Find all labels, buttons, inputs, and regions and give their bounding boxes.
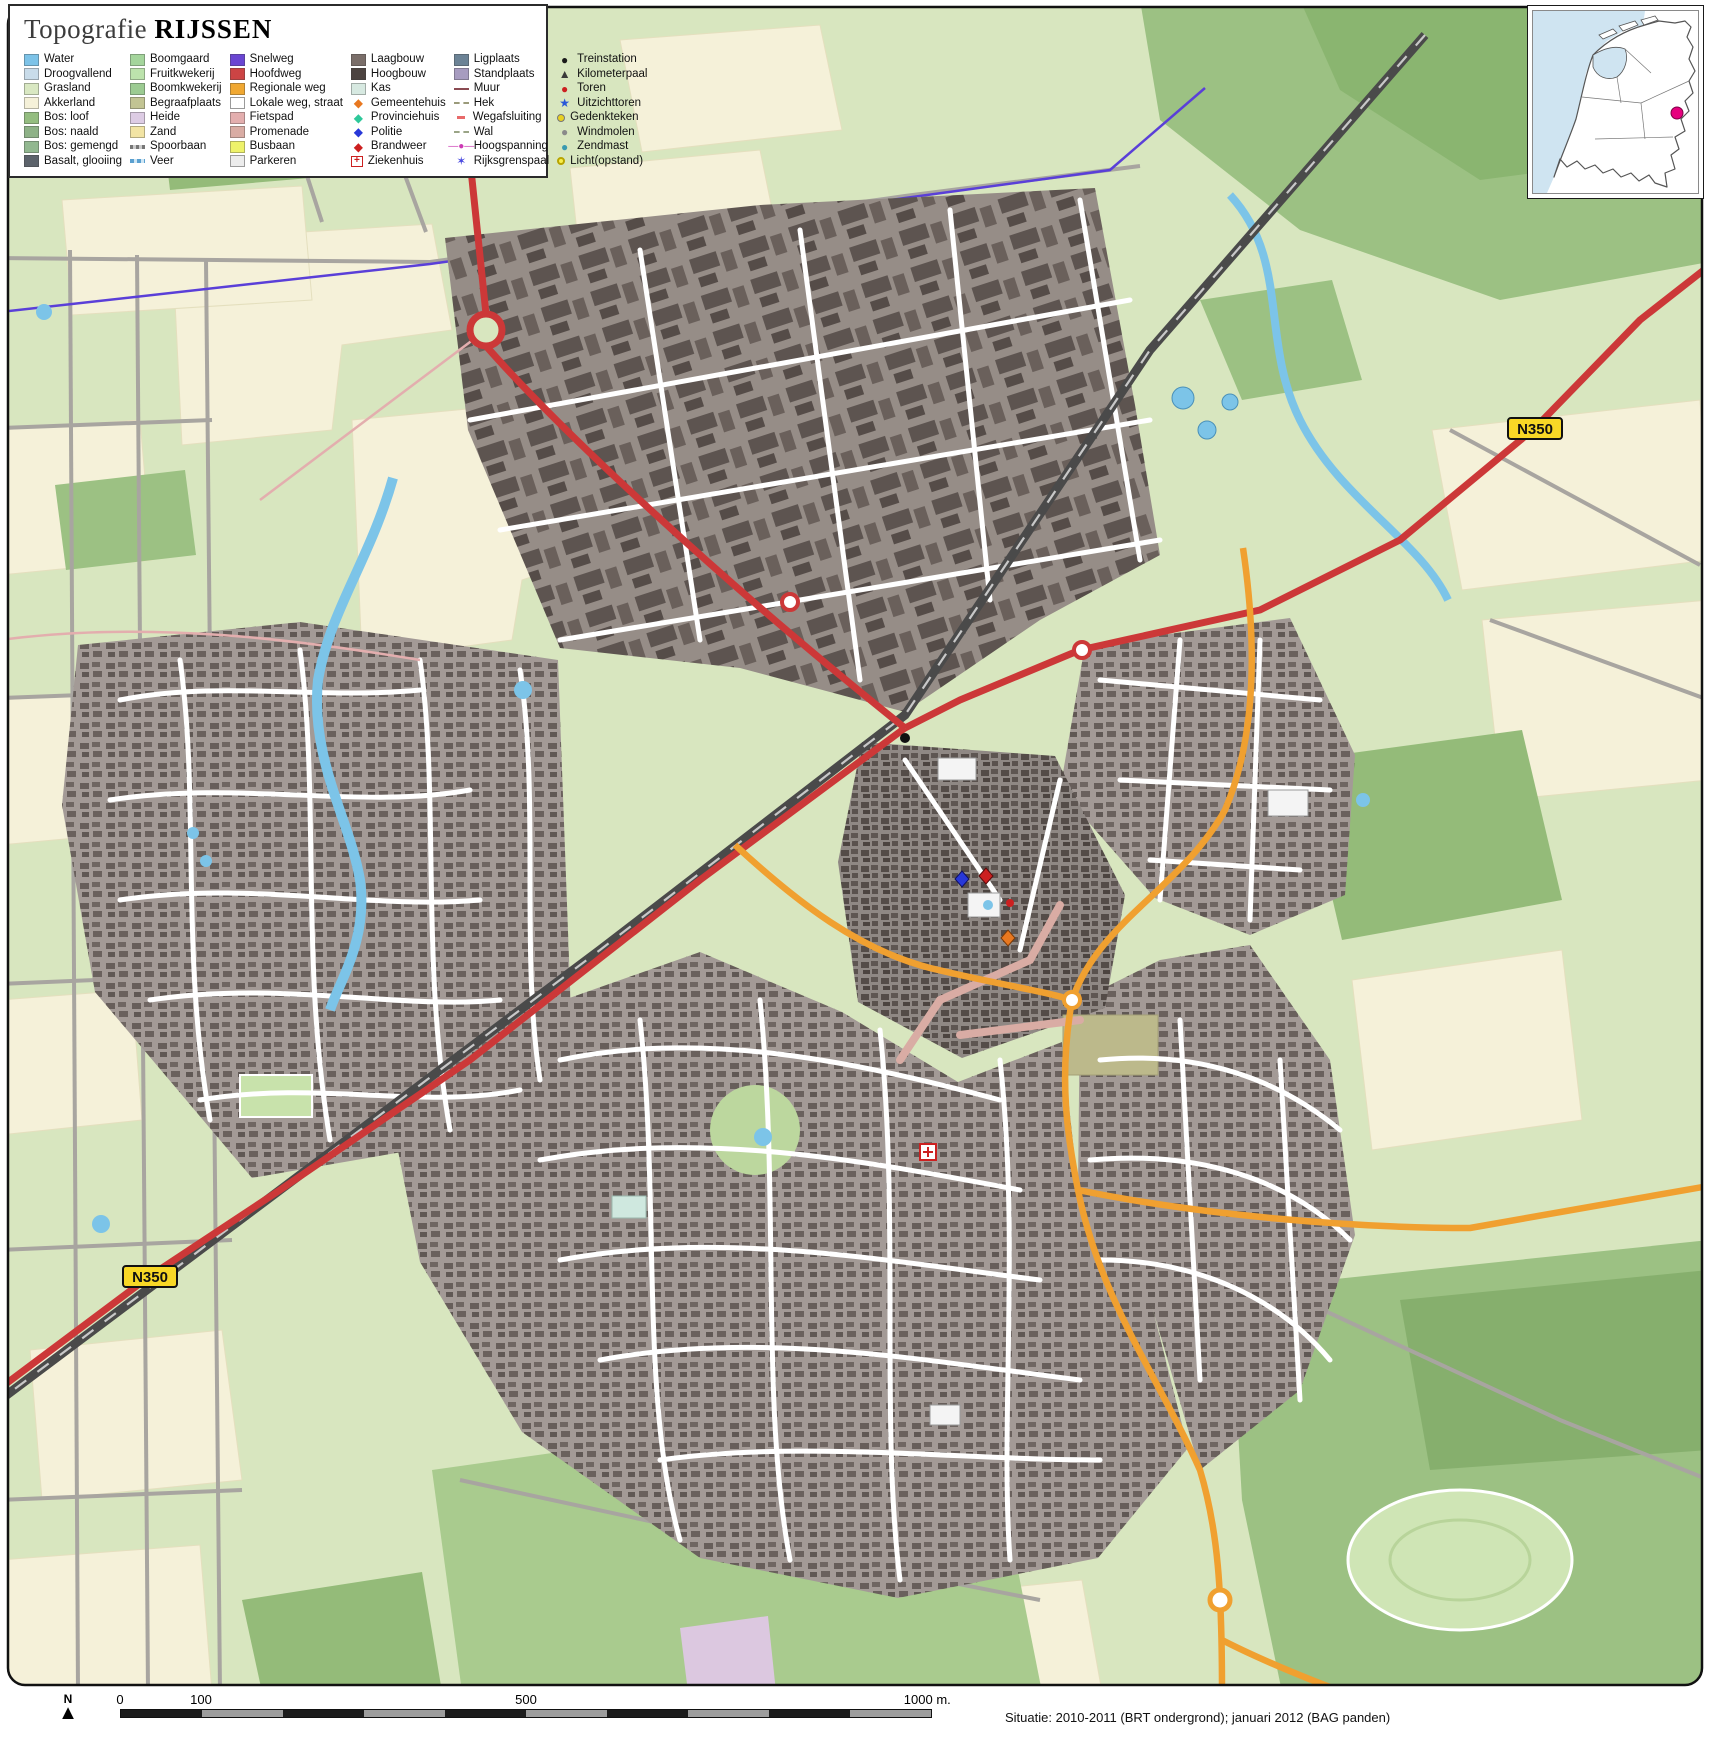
legend-label: Boomkwekerij — [150, 82, 222, 96]
kas-block — [612, 1196, 646, 1218]
legend-label: Licht(opstand) — [570, 155, 643, 169]
topographic-map-page: N350 N350 Topografie RIJSSEN WaterDroogv… — [0, 0, 1709, 1743]
park — [710, 1085, 800, 1175]
legend-label: Hek — [474, 97, 494, 111]
legend-item: ▲Kilometerpaal — [557, 68, 647, 82]
legend-item: Parkeren — [230, 155, 343, 169]
legend-label: Bos: naald — [44, 126, 98, 140]
legend-item: Droogvallend — [24, 68, 122, 82]
legend-item: Boomgaard — [130, 53, 222, 67]
legend-swatch-dot-icon: ● — [557, 54, 572, 66]
legend-swatch-rect-icon — [130, 54, 145, 66]
legend-swatch-wal-icon — [454, 131, 469, 133]
legend-item: Begraafplaats — [130, 97, 222, 111]
legend-swatch-rect-icon — [230, 126, 245, 138]
legend-item: Hek — [454, 97, 549, 111]
legend-item: —●—Hoogspanning — [454, 140, 549, 154]
legend-item: Akkerland — [24, 97, 122, 111]
legend-label: Windmolen — [577, 126, 635, 140]
legend-item: Fruitkwekerij — [130, 68, 222, 82]
heide-patch — [680, 1616, 776, 1692]
legend-item: Basalt, glooiing — [24, 155, 122, 169]
legend-item: Laagbouw — [351, 53, 446, 67]
legend-swatch-rect-icon — [24, 112, 39, 124]
attribution-text: Situatie: 2010-2011 (BRT ondergrond); ja… — [1005, 1710, 1390, 1725]
legend-swatch-rect-icon — [130, 97, 145, 109]
legend-item: Standplaats — [454, 68, 549, 82]
legend-item: Hoogbouw — [351, 68, 446, 82]
legend-label: Laagbouw — [371, 53, 424, 67]
legend-grid: WaterDroogvallendGraslandAkkerlandBos: l… — [24, 53, 536, 168]
legend-swatch-rect-icon — [230, 141, 245, 153]
road-badge-n350: N350 — [1508, 418, 1562, 439]
legend-swatch-rect-icon — [454, 68, 469, 80]
legend-item: ✶Rijksgrenspaal — [454, 155, 549, 169]
sports-oval — [1348, 1490, 1572, 1630]
legend-label: Ligplaats — [474, 53, 520, 67]
legend-swatch-rect-icon — [130, 126, 145, 138]
legend-swatch-diamond-icon: ◆ — [351, 141, 366, 153]
legend-swatch-rect-border-icon — [230, 155, 245, 167]
legend-swatch-line-icon — [454, 88, 469, 90]
legend-label: Bos: loof — [44, 111, 89, 125]
legend-label: Hoogspanning — [474, 140, 548, 154]
legend-label: Boomgaard — [150, 53, 209, 67]
legend-item: Ligplaats — [454, 53, 549, 67]
roundabout — [1074, 642, 1090, 658]
legend-label: Water — [44, 53, 74, 67]
legend-item: ●Toren — [557, 82, 647, 96]
legend-swatch-dot-icon: ● — [557, 83, 572, 95]
legend-label: Fruitkwekerij — [150, 68, 215, 82]
legend-swatch-rect-icon — [24, 97, 39, 109]
legend-swatch-diamond-icon: ◆ — [351, 126, 366, 138]
legend-item: Wegafsluiting — [454, 111, 549, 125]
legend-label: Kilometerpaal — [577, 68, 647, 82]
legend-label: Fietspad — [250, 111, 294, 125]
legend-swatch-rect-icon — [24, 141, 39, 153]
scale-labels: 0 100 500 1000 m. — [120, 1692, 932, 1709]
legend-swatch-dot-icon: ● — [557, 126, 572, 138]
roundabout — [1210, 1590, 1230, 1610]
legend: Topografie RIJSSEN WaterDroogvallendGras… — [8, 4, 548, 178]
legend-item: Lokale weg, straat — [230, 97, 343, 111]
legend-label: Zand — [150, 126, 176, 140]
map-canvas: N350 N350 — [0, 0, 1709, 1692]
legend-item: Fietspad — [230, 111, 343, 125]
legend-swatch-rect-icon — [130, 68, 145, 80]
legend-swatch-rect-border-icon — [230, 97, 245, 109]
legend-item: Busbaan — [230, 140, 343, 154]
legend-label: Hoogbouw — [371, 68, 426, 82]
legend-swatch-rect-icon — [351, 54, 366, 66]
legend-item: Kas — [351, 82, 446, 96]
legend-label: Spoorbaan — [150, 140, 206, 154]
legend-label: Lokale weg, straat — [250, 97, 343, 111]
legend-swatch-rail-icon — [130, 145, 145, 149]
legend-label: Kas — [371, 82, 391, 96]
legend-label: Wal — [474, 126, 493, 140]
legend-item: Bos: loof — [24, 111, 122, 125]
legend-item: Spoorbaan — [130, 140, 222, 154]
legend-swatch-rect-icon — [454, 54, 469, 66]
legend-item: Veer — [130, 155, 222, 169]
legend-swatch-rect-icon — [24, 155, 39, 167]
north-arrow-icon: N ▲ — [58, 1694, 78, 1722]
legend-swatch-dot-icon: ● — [557, 141, 572, 153]
legend-item: Heide — [130, 111, 222, 125]
legend-swatch-dot-ring-icon — [557, 114, 565, 122]
legend-item: ◆Politie — [351, 126, 446, 140]
legend-item: Gedenkteken — [557, 111, 647, 125]
location-marker — [1671, 107, 1683, 119]
legend-label: Gemeentehuis — [371, 97, 446, 111]
legend-label: Akkerland — [44, 97, 95, 111]
legend-label: Brandweer — [371, 140, 427, 154]
roundabout — [782, 594, 798, 610]
legend-item: ●Windmolen — [557, 126, 647, 140]
legend-label: Regionale weg — [250, 82, 326, 96]
legend-swatch-rect-icon — [351, 83, 366, 95]
legend-swatch-dash-icon — [457, 116, 465, 119]
legend-item: ★Uitzichttoren — [557, 97, 647, 111]
legend-label: Promenade — [250, 126, 309, 140]
legend-item: Promenade — [230, 126, 343, 140]
legend-label: Rijksgrenspaal — [474, 155, 549, 169]
legend-swatch-ring-icon — [557, 157, 565, 165]
legend-item: Muur — [454, 82, 549, 96]
legend-label: Busbaan — [250, 140, 295, 154]
legend-label: Basalt, glooiing — [44, 155, 122, 169]
bottom-bar: N ▲ 0 100 500 1000 m. Situatie: 2010-201… — [0, 1692, 1709, 1743]
legend-swatch-hek-icon — [454, 102, 469, 104]
svg-text:N350: N350 — [1517, 421, 1553, 438]
legend-swatch-rect-icon — [230, 68, 245, 80]
legend-swatch-rect-icon — [230, 54, 245, 66]
svg-text:N350: N350 — [132, 1269, 168, 1286]
legend-swatch-rect-icon — [230, 83, 245, 95]
legend-item: Bos: naald — [24, 126, 122, 140]
legend-item: ●Treinstation — [557, 53, 647, 67]
legend-label: Veer — [150, 155, 174, 169]
legend-label: Parkeren — [250, 155, 297, 169]
legend-label: Treinstation — [577, 53, 637, 67]
legend-item: ◆Provinciehuis — [351, 111, 446, 125]
legend-label: Gedenkteken — [570, 111, 638, 125]
scale-bar: 0 100 500 1000 m. — [120, 1692, 932, 1718]
legend-label: Ziekenhuis — [368, 155, 424, 169]
legend-label: Heide — [150, 111, 180, 125]
ziekenhuis-marker — [920, 1144, 936, 1160]
legend-label: Droogvallend — [44, 68, 112, 82]
legend-label: Hoofdweg — [250, 68, 302, 82]
legend-item: Regionale weg — [230, 82, 343, 96]
train-station-marker — [900, 733, 910, 743]
legend-label: Grasland — [44, 82, 91, 96]
legend-item: Snelweg — [230, 53, 343, 67]
legend-swatch-diamond-icon: ◆ — [351, 97, 366, 109]
legend-swatch-rect-icon — [230, 112, 245, 124]
legend-label: Bos: gemengd — [44, 140, 118, 154]
legend-item: Water — [24, 53, 122, 67]
legend-swatch-star-icon: ★ — [557, 97, 572, 109]
legend-item: Licht(opstand) — [557, 155, 647, 169]
roundabout — [1064, 992, 1080, 1008]
legend-item: ●Zendmast — [557, 140, 647, 154]
legend-swatch-rect-icon — [24, 126, 39, 138]
legend-label: Zendmast — [577, 140, 628, 154]
legend-item: Zand — [130, 126, 222, 140]
legend-label: Uitzichttoren — [577, 97, 641, 111]
legend-swatch-grenspaal-icon: ✶ — [454, 155, 469, 167]
toren-marker — [1006, 899, 1014, 907]
legend-item: Hoofdweg — [230, 68, 343, 82]
legend-swatch-veer-icon — [130, 159, 145, 163]
inset-locator-map — [1527, 5, 1704, 199]
roundabout — [470, 314, 502, 346]
legend-label: Provinciehuis — [371, 111, 439, 125]
legend-swatch-rect-icon — [351, 68, 366, 80]
legend-swatch-rect-icon — [24, 54, 39, 66]
legend-swatch-rect-icon — [130, 83, 145, 95]
road-badge-n350: N350 — [123, 1266, 177, 1287]
legend-swatch-rect-icon — [24, 83, 39, 95]
legend-swatch-triangle-icon: ▲ — [557, 68, 572, 80]
legend-item: ◆Brandweer — [351, 140, 446, 154]
legend-swatch-rect-icon — [24, 68, 39, 80]
legend-item: Bos: gemengd — [24, 140, 122, 154]
legend-item: +Ziekenhuis — [351, 155, 446, 169]
legend-item: Grasland — [24, 82, 122, 96]
legend-swatch-rect-icon — [130, 112, 145, 124]
legend-item: ◆Gemeentehuis — [351, 97, 446, 111]
legend-label: Politie — [371, 126, 402, 140]
legend-swatch-cross-icon: + — [351, 156, 363, 167]
netherlands-outline — [1533, 11, 1698, 193]
legend-label: Snelweg — [250, 53, 294, 67]
legend-item: Wal — [454, 126, 549, 140]
legend-label: Muur — [474, 82, 500, 96]
legend-label: Wegafsluiting — [473, 111, 542, 125]
legend-label: Begraafplaats — [150, 97, 221, 111]
scale-segments — [120, 1709, 932, 1718]
legend-item: Boomkwekerij — [130, 82, 222, 96]
legend-swatch-diamond-icon: ◆ — [351, 112, 366, 124]
legend-swatch-hoogspanning-icon: —●— — [454, 141, 469, 153]
legend-label: Toren — [577, 82, 606, 96]
page-title: Topografie RIJSSEN — [24, 14, 536, 45]
legend-label: Standplaats — [474, 68, 535, 82]
